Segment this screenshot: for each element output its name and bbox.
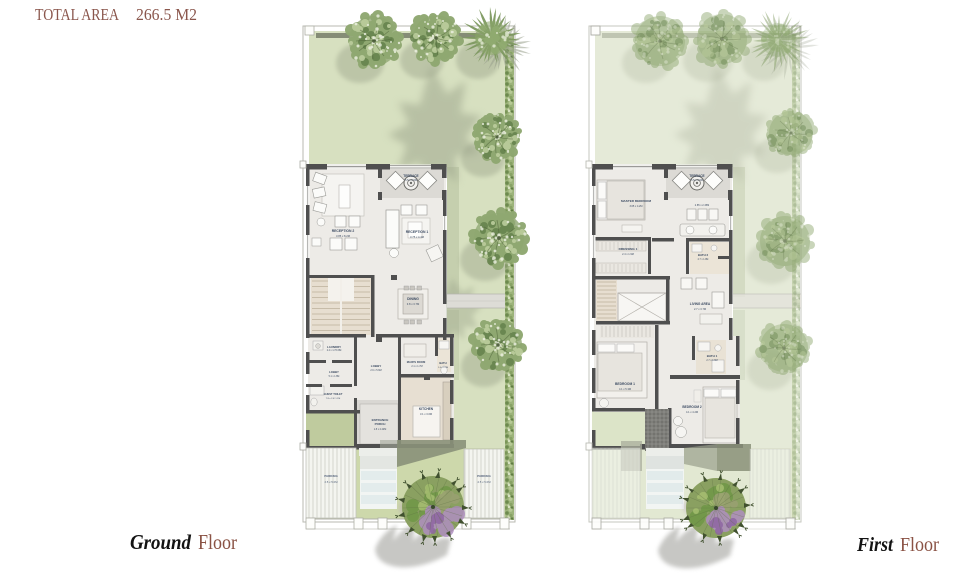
svg-text:4.1 x 4.2M: 4.1 x 4.2M <box>686 410 698 414</box>
svg-text:2.6 x 5.6M: 2.6 x 5.6M <box>370 369 381 372</box>
svg-text:3.8 x 3.7M: 3.8 x 3.7M <box>407 302 420 306</box>
svg-text:1.6 x 2.2M: 1.6 x 2.2M <box>438 367 448 369</box>
svg-text:4.1 x 5.3M: 4.1 x 5.3M <box>619 387 631 391</box>
svg-text:First: First <box>856 534 894 556</box>
svg-text:5.5 x 3.5M: 5.5 x 3.5M <box>405 178 417 182</box>
svg-text:KITCHEN: KITCHEN <box>419 407 434 411</box>
svg-text:3.65 x 4.2M: 3.65 x 4.2M <box>629 205 642 208</box>
svg-text:LAUNDRY: LAUNDRY <box>327 345 341 349</box>
svg-text:2.7 x 1.9M: 2.7 x 1.9M <box>698 259 709 261</box>
svg-text:TOTAL AREA: TOTAL AREA <box>35 5 120 24</box>
svg-text:BATH 2: BATH 2 <box>698 253 709 257</box>
svg-text:266.5 M2: 266.5 M2 <box>136 5 197 24</box>
svg-text:MASTER BEDROOM: MASTER BEDROOM <box>621 199 652 203</box>
svg-text:2.1 x 1.7M: 2.1 x 1.7M <box>411 365 422 368</box>
svg-text:2.5 x 5.0M: 2.5 x 5.0M <box>324 480 338 484</box>
svg-text:2.85 x 2.45M: 2.85 x 2.45M <box>695 204 709 207</box>
svg-text:RECEPTION 1: RECEPTION 1 <box>406 230 429 234</box>
svg-text:2.7 x 3.7M: 2.7 x 3.7M <box>694 307 706 311</box>
svg-text:BEDROOM 1: BEDROOM 1 <box>615 382 635 386</box>
svg-text:DRESSING 1: DRESSING 1 <box>619 247 638 251</box>
svg-text:PARKING: PARKING <box>324 474 338 478</box>
svg-text:5.1 x 1.8M: 5.1 x 1.8M <box>329 376 340 378</box>
svg-text:3.85 x 8.2M: 3.85 x 8.2M <box>336 234 351 238</box>
svg-text:BEDROOM 2: BEDROOM 2 <box>682 405 702 409</box>
svg-text:1.8 x 2.22M: 1.8 x 2.22M <box>374 428 387 431</box>
svg-text:GUEST TOILET: GUEST TOILET <box>324 392 343 396</box>
svg-text:2.4 x 1.7/0.9M: 2.4 x 1.7/0.9M <box>327 350 342 352</box>
svg-text:PARKING: PARKING <box>477 474 491 478</box>
svg-text:MAID'S ROOM: MAID'S ROOM <box>407 360 426 364</box>
svg-text:5.5 x 3.5M: 5.5 x 3.5M <box>691 178 703 182</box>
svg-text:TERRACE: TERRACE <box>689 174 704 178</box>
svg-text:Floor: Floor <box>900 534 939 556</box>
svg-text:LOBBY: LOBBY <box>371 364 382 368</box>
svg-text:2.4 x 1.9M: 2.4 x 1.9M <box>622 253 634 256</box>
svg-text:RECEPTION 2: RECEPTION 2 <box>332 229 355 233</box>
svg-text:LIVING AREA: LIVING AREA <box>690 302 711 306</box>
svg-text:BATH: BATH <box>439 361 446 365</box>
svg-text:7.8 x 2.0/ 1.1M: 7.8 x 2.0/ 1.1M <box>326 398 341 400</box>
svg-text:3.75 x 4.4M: 3.75 x 4.4M <box>410 235 425 239</box>
svg-text:2.7 x 1.6M: 2.7 x 1.6M <box>706 359 717 362</box>
svg-text:3.1 x 3.6M: 3.1 x 3.6M <box>420 412 432 416</box>
svg-text:DINING: DINING <box>407 297 419 301</box>
svg-text:PORCH: PORCH <box>375 422 386 426</box>
svg-text:2.5 x 5.0M: 2.5 x 5.0M <box>477 480 491 484</box>
svg-text:TERRACE: TERRACE <box>403 174 418 178</box>
svg-text:Floor: Floor <box>198 530 237 554</box>
svg-text:BATH 1: BATH 1 <box>707 354 718 358</box>
svg-text:Ground: Ground <box>130 530 191 554</box>
svg-text:LOBBY: LOBBY <box>329 370 339 374</box>
